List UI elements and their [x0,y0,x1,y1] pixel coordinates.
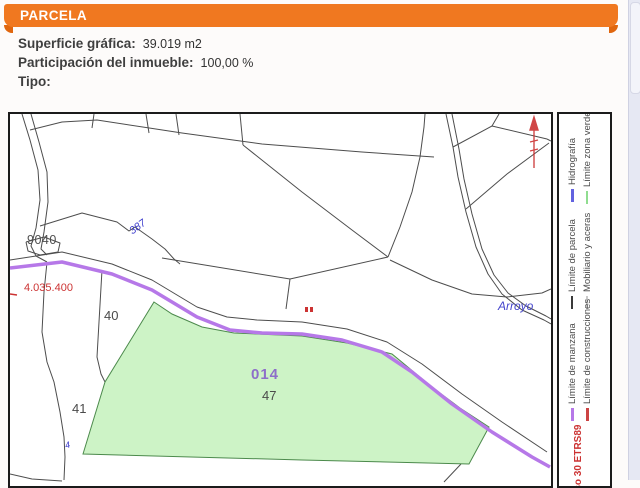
legend-item-zona-verde: Límite zona verde [582,112,593,204]
green-parcel-code: 014 [251,366,279,383]
north-arrow-icon [530,117,538,168]
legend-label: Límite de parcela [567,219,578,292]
parcel-40-label: 40 [104,308,118,323]
projection-label: Huso 30 ETRS89 [573,425,584,488]
arroyo-label: Arroyo [498,299,533,313]
zona-verde-line-swatch [586,191,588,204]
tipo-label: Tipo: [18,74,51,89]
limite-manzana-line-swatch [571,408,574,421]
legend-label: Hidrografía [567,138,578,185]
superficie-row: Superficie gráfica:39.019 m2 [18,34,253,53]
grid-northing-label: 4.035.400 [24,282,73,294]
legend-item-limite-construcciones: Límite de construcciones [582,299,593,421]
legend-label: Límite zona verde [582,112,593,187]
parcel-41-label: 41 [72,401,86,416]
vertical-scrollbar[interactable] [628,0,640,480]
hidrografia-line-swatch [571,189,574,202]
cadastral-map: 9040 387 4.035.400 40 41 4 014 47 Arroyo [8,112,553,488]
legend-label: Mobiliario y aceras [582,213,593,292]
participacion-label: Participación del inmueble: [18,55,194,70]
grid-tick [10,294,17,295]
limite-construcciones-line-swatch [586,408,589,421]
parcel-info: Superficie gráfica:39.019 m2 Participaci… [18,34,253,91]
legend-item-limite-manzana: Límite de manzana [567,323,578,421]
limite-parcela-line-swatch [571,296,573,309]
parcela-header-ribbon: PARCELA [4,4,618,27]
legend-label: Límite de construcciones [582,299,593,404]
page-title: PARCELA [20,4,87,27]
tipo-row: Tipo: [18,72,253,91]
green-parcel-number: 47 [262,388,276,403]
superficie-label: Superficie gráfica: [18,36,136,51]
block-number-label: 9040 [27,233,57,247]
participacion-row: Participación del inmueble:100,00 % [18,53,253,72]
scrollbar-thumb[interactable] [630,2,640,94]
legend-item-hidrografia: Hidrografía [567,138,578,202]
construction-mark-icon [305,307,313,312]
superficie-value: 39.019 m2 [143,37,202,51]
map-canvas [10,114,551,486]
legend-item-mobiliario: Mobiliario y aceras [582,213,593,309]
participacion-value: 100,00 % [201,56,254,70]
map-legend: Hidrografía Límite zona verde Límite de … [557,112,612,488]
legend-label: Límite de manzana [567,323,578,404]
legend-item-limite-parcela: Límite de parcela [567,219,578,309]
